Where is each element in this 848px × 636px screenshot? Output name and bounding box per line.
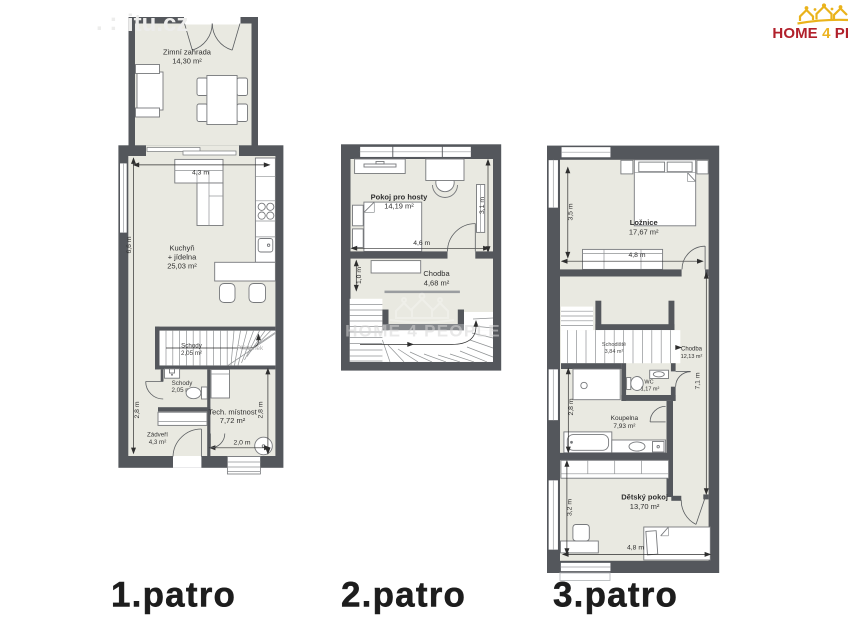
svg-text:7,1 m: 7,1 m <box>694 372 701 389</box>
svg-text:+ jídelna: + jídelna <box>168 253 197 262</box>
svg-text:4,3 m²: 4,3 m² <box>149 439 167 446</box>
svg-text:3,5 m: 3,5 m <box>567 203 574 220</box>
svg-text:4,8 m: 4,8 m <box>629 252 646 259</box>
svg-text:WC: WC <box>644 380 653 386</box>
svg-text:itu.cz: itu.cz <box>127 10 188 37</box>
svg-text:Přístěnek: Přístěnek <box>237 345 264 352</box>
svg-text:14,30 m²: 14,30 m² <box>172 57 202 66</box>
svg-text:Chodba: Chodba <box>423 269 450 278</box>
svg-text:2,05 m²: 2,05 m² <box>181 350 202 357</box>
svg-text:4,6 m: 4,6 m <box>413 240 430 247</box>
svg-text:. :: . : <box>96 9 117 36</box>
svg-text:3.patro: 3.patro <box>553 576 678 615</box>
svg-text:Koupelna: Koupelna <box>611 415 639 422</box>
svg-text:6,6 m: 6,6 m <box>126 236 133 253</box>
svg-text:12,13 m²: 12,13 m² <box>681 354 703 360</box>
svg-text:7,93 m²: 7,93 m² <box>613 423 636 430</box>
svg-text:1,0 m: 1,0 m <box>356 267 363 284</box>
svg-text:4,3 m: 4,3 m <box>192 170 209 177</box>
svg-text:Schodiště: Schodiště <box>602 342 626 348</box>
svg-text:4,68 m²: 4,68 m² <box>424 279 450 288</box>
svg-text:Ložnice: Ložnice <box>630 218 658 227</box>
svg-text:Zádveří: Zádveří <box>147 432 168 439</box>
svg-text:17,67 m²: 17,67 m² <box>629 228 659 237</box>
svg-text:Kuchyň: Kuchyň <box>169 244 194 253</box>
svg-text:3,84 m²: 3,84 m² <box>605 349 624 355</box>
svg-text:Tech. místnost: Tech. místnost <box>208 407 257 416</box>
svg-text:14,19 m²: 14,19 m² <box>384 202 414 211</box>
svg-text:Dětský pokoj: Dětský pokoj <box>621 493 668 502</box>
svg-text:Schody: Schody <box>181 343 203 350</box>
svg-text:Pokoj pro hosty: Pokoj pro hosty <box>371 193 429 202</box>
svg-text:13,70 m²: 13,70 m² <box>630 502 660 511</box>
svg-text:1.patro: 1.patro <box>111 576 236 615</box>
svg-text:2,8 m: 2,8 m <box>258 401 265 418</box>
svg-text:Zimní zahrada: Zimní zahrada <box>163 48 212 57</box>
svg-text:1,17 m²: 1,17 m² <box>641 387 660 393</box>
svg-text:Schody: Schody <box>172 380 194 387</box>
svg-text:2,8 m: 2,8 m <box>568 398 575 415</box>
svg-text:HOME 4 PE: HOME 4 PE <box>772 25 848 42</box>
svg-text:4,8 m: 4,8 m <box>627 545 644 552</box>
svg-text:7,72 m²: 7,72 m² <box>220 416 246 425</box>
svg-text:3,2 m: 3,2 m <box>567 499 574 516</box>
svg-text:3,1 m: 3,1 m <box>479 197 486 214</box>
svg-text:2,0 m: 2,0 m <box>234 440 251 447</box>
svg-text:25,03 m²: 25,03 m² <box>167 262 197 271</box>
svg-text:Chodba: Chodba <box>681 347 703 353</box>
svg-text:2,8 m: 2,8 m <box>134 401 141 418</box>
svg-text:2.patro: 2.patro <box>341 576 466 615</box>
svg-text:HOME 4 PEOPLE: HOME 4 PEOPLE <box>345 322 501 341</box>
